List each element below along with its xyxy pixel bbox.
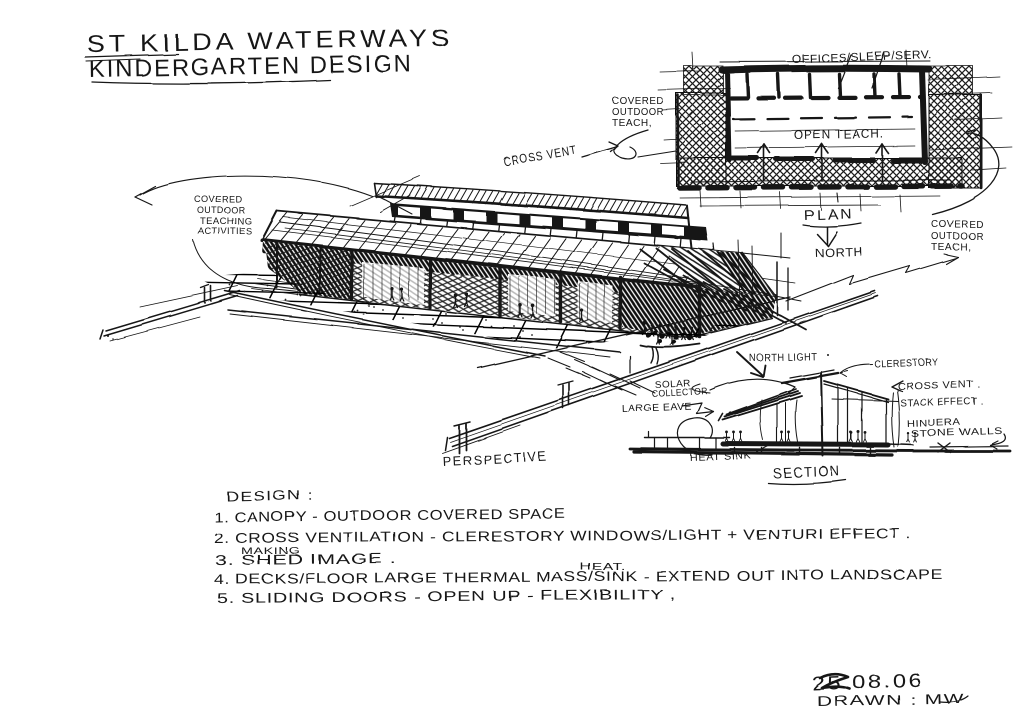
svg-text:CLERESTORY: CLERESTORY: [874, 357, 938, 370]
svg-text:CROSS VENT .: CROSS VENT .: [897, 380, 981, 392]
svg-text:KINDERGARTEN DESIGN: KINDERGARTEN DESIGN: [89, 50, 413, 83]
svg-text:STACK EFFECT .: STACK EFFECT .: [900, 397, 984, 409]
svg-text:NORTH: NORTH: [815, 244, 863, 260]
svg-text:PLAN: PLAN: [804, 205, 855, 223]
svg-text:OPEN TEACH.: OPEN TEACH.: [794, 126, 884, 142]
svg-text:OUTDOOR: OUTDOOR: [197, 205, 245, 216]
svg-text:ACTIVITIES: ACTIVITIES: [198, 226, 252, 237]
svg-text:TEACH,: TEACH,: [612, 118, 652, 129]
svg-text:OUTDOOR: OUTDOOR: [931, 231, 983, 242]
svg-text:HEAT SINK: HEAT SINK: [690, 451, 752, 464]
svg-text:3. SHED IMAGE .: 3. SHED IMAGE .: [215, 550, 397, 568]
svg-text:DRAWN : MW: DRAWN : MW: [817, 690, 965, 709]
svg-text:TEACH,: TEACH,: [931, 242, 971, 253]
svg-text:COVERED: COVERED: [194, 194, 242, 205]
svg-text:OUTDOOR: OUTDOOR: [612, 107, 664, 118]
svg-text:DESIGN :: DESIGN :: [226, 487, 314, 504]
svg-text:COVERED: COVERED: [612, 96, 664, 107]
svg-text:NORTH LIGHT: NORTH LIGHT: [749, 351, 817, 364]
svg-text:COVERED: COVERED: [931, 219, 983, 230]
svg-text:SECTION: SECTION: [773, 463, 842, 481]
